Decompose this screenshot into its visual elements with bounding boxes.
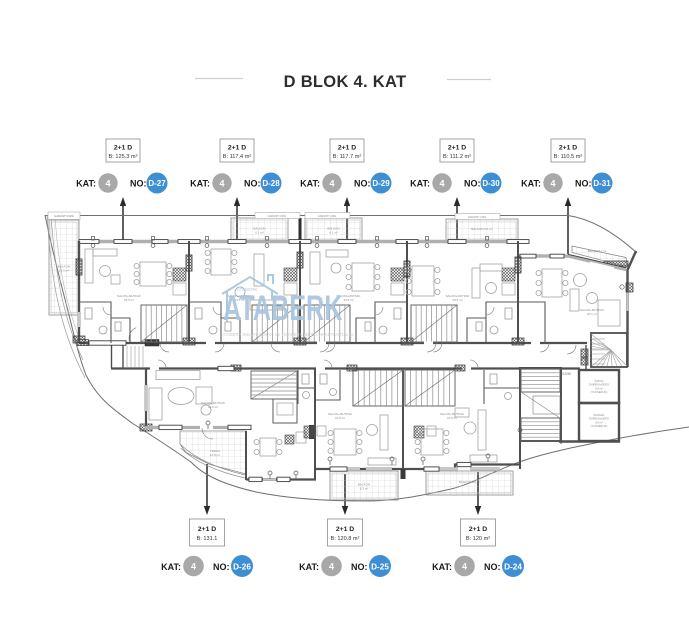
svg-text:KAT:: KAT: [432,562,452,572]
svg-text:B: 120.8 m²: B: 120.8 m² [331,536,360,542]
svg-text:NO:: NO: [575,179,592,189]
svg-text:2+1 D: 2+1 D [228,145,246,152]
svg-text:DAIRESI+DEPO: DAIRESI+DEPO [589,383,609,387]
svg-text:12.1 m²: 12.1 m² [59,269,69,273]
svg-text:8.3 m²: 8.3 m² [360,487,369,491]
svg-text:(YUKSEKLIK): (YUKSEKLIK) [591,424,608,428]
svg-text:4: 4 [462,562,467,572]
svg-text:B: 111.2 m²: B: 111.2 m² [443,154,471,160]
svg-text:betonarme yol: betonarme yol [356,499,373,503]
svg-text:4: 4 [329,562,334,572]
svg-text:2+1 D: 2+1 D [338,145,356,152]
svg-text:D-25: D-25 [371,563,389,572]
svg-text:NO:: NO: [213,562,230,572]
svg-text:4: 4 [105,179,110,189]
svg-text:KAT:: KAT: [299,562,319,572]
svg-text:NO:: NO: [464,179,481,189]
svg-text:2+1 D: 2+1 D [114,145,132,152]
svg-text:D-28: D-28 [262,179,280,188]
svg-text:2+1 D: 2+1 D [448,145,466,152]
svg-text:B: 125.3 m²: B: 125.3 m² [109,154,138,160]
svg-text:GARANTI CIZG: GARANTI CIZG [268,214,286,218]
svg-text:BALKON 8.9 m²: BALKON 8.9 m² [459,480,481,484]
svg-text:ATABERK: ATABERK [223,289,342,328]
svg-text:KAT:: KAT: [76,179,96,189]
svg-text:ATABERK INSAAT SANAYI VE TICAR: ATABERK INSAAT SANAYI VE TICARET LIMITED… [223,332,354,337]
svg-text:(YUKSEKLIK): (YUKSEKLIK) [591,390,608,394]
svg-text:10.5 m²: 10.5 m² [210,453,220,457]
svg-text:4: 4 [191,562,196,572]
svg-text:31.5 m²: 31.5 m² [447,416,457,420]
svg-text:30.1 m²: 30.1 m² [587,312,597,316]
svg-text:D BLOK 4. KAT: D BLOK 4. KAT [284,73,407,91]
svg-text:DAIRESI+DEPO: DAIRESI+DEPO [589,417,609,421]
svg-text:2+1 D: 2+1 D [559,145,577,152]
svg-text:D-31: D-31 [593,179,611,188]
svg-text:NO:: NO: [130,179,147,189]
svg-text:GARANTI CIZG: GARANTI CIZG [54,214,74,218]
svg-text:+13.90: +13.90 [561,372,571,376]
svg-text:KAT:: KAT: [300,179,320,189]
svg-text:KAT:: KAT: [410,179,430,189]
svg-text:D-29: D-29 [372,179,390,188]
svg-text:B: 110.5 m²: B: 110.5 m² [554,154,583,160]
svg-text:KAT:: KAT: [190,179,210,189]
svg-text:4: 4 [550,179,555,189]
svg-text:KAPICI: KAPICI [595,379,604,383]
svg-text:NO:: NO: [244,179,261,189]
svg-text:D-27: D-27 [148,179,166,188]
svg-text:2+1 D: 2+1 D [336,526,354,533]
svg-text:4: 4 [219,179,224,189]
svg-text:SIGINAK: SIGINAK [594,413,605,417]
svg-text:GARANTI CIZG: GARANTI CIZG [468,215,486,219]
svg-text:BALKON 5.1 m²: BALKON 5.1 m² [588,249,607,253]
svg-text:4: 4 [329,179,334,189]
svg-text:KAT:: KAT: [161,562,181,572]
svg-text:31.5 m²: 31.5 m² [335,416,345,420]
svg-text:33.5 m²: 33.5 m² [124,298,134,302]
svg-text:D-30: D-30 [482,179,500,188]
svg-text:2+1 D: 2+1 D [469,526,487,533]
svg-text:NO:: NO: [484,562,501,572]
svg-text:6.8 m²: 6.8 m² [595,386,603,390]
svg-text:B: 131.1: B: 131.1 [197,536,218,542]
svg-text:6.1 m²: 6.1 m² [255,231,264,235]
svg-text:33.5 m²: 33.5 m² [452,298,462,302]
svg-text:34.6 m²: 34.6 m² [208,405,218,409]
svg-text:BALKON 8.4 m²: BALKON 8.4 m² [471,227,493,231]
svg-text:6.1 m²: 6.1 m² [329,231,338,235]
svg-text:D-26: D-26 [233,563,251,572]
svg-text:B: 117.7 m²: B: 117.7 m² [333,154,362,160]
svg-text:6.8 m²: 6.8 m² [595,420,603,424]
svg-text:D-24: D-24 [504,563,522,572]
svg-text:NO:: NO: [354,179,371,189]
svg-text:2+1 D: 2+1 D [198,526,216,533]
svg-text:KAT:: KAT: [521,179,541,189]
svg-text:33.5 m²: 33.5 m² [343,298,353,302]
svg-text:NO:: NO: [351,562,368,572]
svg-text:4: 4 [439,179,444,189]
svg-text:B: 117.4 m²: B: 117.4 m² [223,154,252,160]
svg-text:GARANTI CIZG: GARANTI CIZG [318,214,336,218]
svg-text:B: 120 m²: B: 120 m² [466,536,490,542]
